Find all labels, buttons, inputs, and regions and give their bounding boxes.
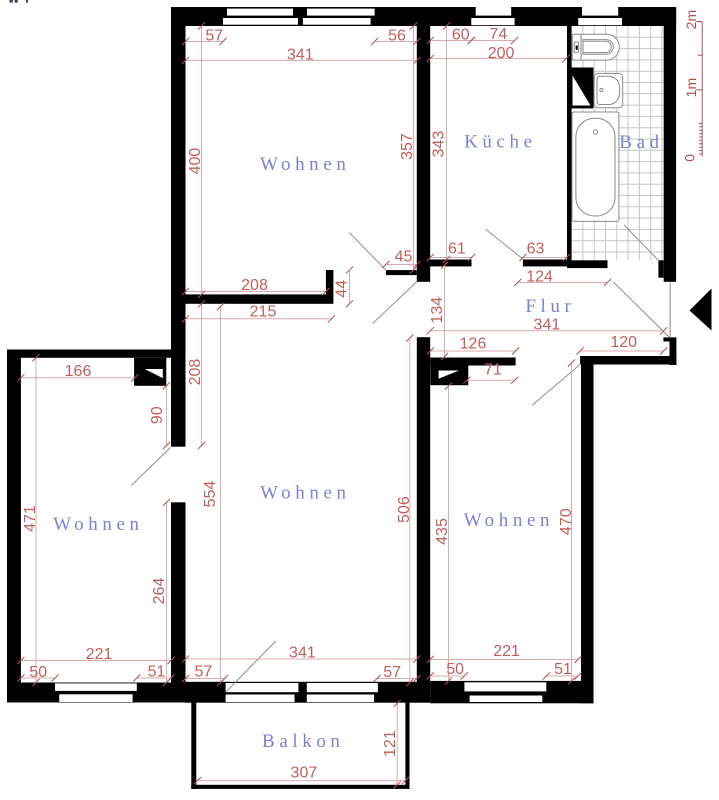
svg-text:57: 57 — [195, 664, 213, 681]
svg-text:Wohnen: Wohnen — [260, 483, 350, 504]
svg-text:400: 400 — [187, 148, 204, 175]
svg-text:126: 126 — [460, 336, 487, 353]
svg-text:51: 51 — [554, 661, 572, 678]
svg-text:221: 221 — [86, 646, 113, 663]
svg-text:1m: 1m — [683, 78, 699, 97]
svg-text:221: 221 — [493, 643, 520, 660]
svg-text:124: 124 — [526, 269, 553, 286]
svg-text:60: 60 — [452, 27, 470, 44]
svg-text:357: 357 — [399, 133, 416, 160]
svg-text:45: 45 — [395, 249, 413, 266]
svg-text:56: 56 — [388, 28, 406, 45]
svg-text:74: 74 — [490, 26, 508, 43]
svg-text:2m: 2m — [683, 10, 699, 29]
svg-text:61: 61 — [448, 240, 466, 257]
svg-text:Wohnen: Wohnen — [260, 154, 350, 175]
svg-text:Balkon: Balkon — [262, 731, 345, 752]
svg-text:Küche: Küche — [464, 132, 537, 153]
svg-text:121: 121 — [382, 730, 399, 757]
svg-text:134: 134 — [429, 297, 446, 324]
svg-text:71: 71 — [484, 362, 502, 379]
svg-text:307: 307 — [291, 765, 318, 782]
svg-text:343: 343 — [431, 131, 448, 158]
svg-text:554: 554 — [202, 481, 219, 508]
svg-text:Bad: Bad — [619, 132, 663, 153]
svg-text:166: 166 — [65, 363, 92, 380]
svg-text:264: 264 — [151, 578, 168, 605]
svg-text:341: 341 — [287, 47, 314, 64]
svg-text:90: 90 — [149, 406, 166, 424]
svg-text:215: 215 — [250, 304, 277, 321]
svg-text:0: 0 — [682, 154, 698, 162]
svg-text:471: 471 — [22, 505, 39, 532]
svg-text:470: 470 — [558, 508, 575, 535]
svg-text:341: 341 — [289, 645, 316, 662]
svg-text:341: 341 — [534, 316, 561, 333]
svg-text:57: 57 — [383, 664, 401, 681]
svg-text:435: 435 — [434, 518, 451, 545]
svg-text:63: 63 — [527, 240, 545, 257]
svg-text:Wohnen: Wohnen — [464, 510, 554, 531]
svg-text:Flur: Flur — [525, 296, 575, 317]
svg-text:50: 50 — [446, 661, 464, 678]
svg-text:120: 120 — [610, 334, 637, 351]
svg-text:506: 506 — [396, 496, 413, 523]
svg-text:Wohnen: Wohnen — [53, 514, 143, 535]
svg-text:208: 208 — [241, 277, 268, 294]
svg-text:208: 208 — [187, 359, 204, 386]
svg-text:57: 57 — [205, 28, 223, 45]
svg-text:50: 50 — [29, 664, 47, 681]
svg-text:44: 44 — [333, 280, 350, 298]
svg-text:51: 51 — [148, 663, 166, 680]
svg-text:200: 200 — [488, 45, 515, 62]
